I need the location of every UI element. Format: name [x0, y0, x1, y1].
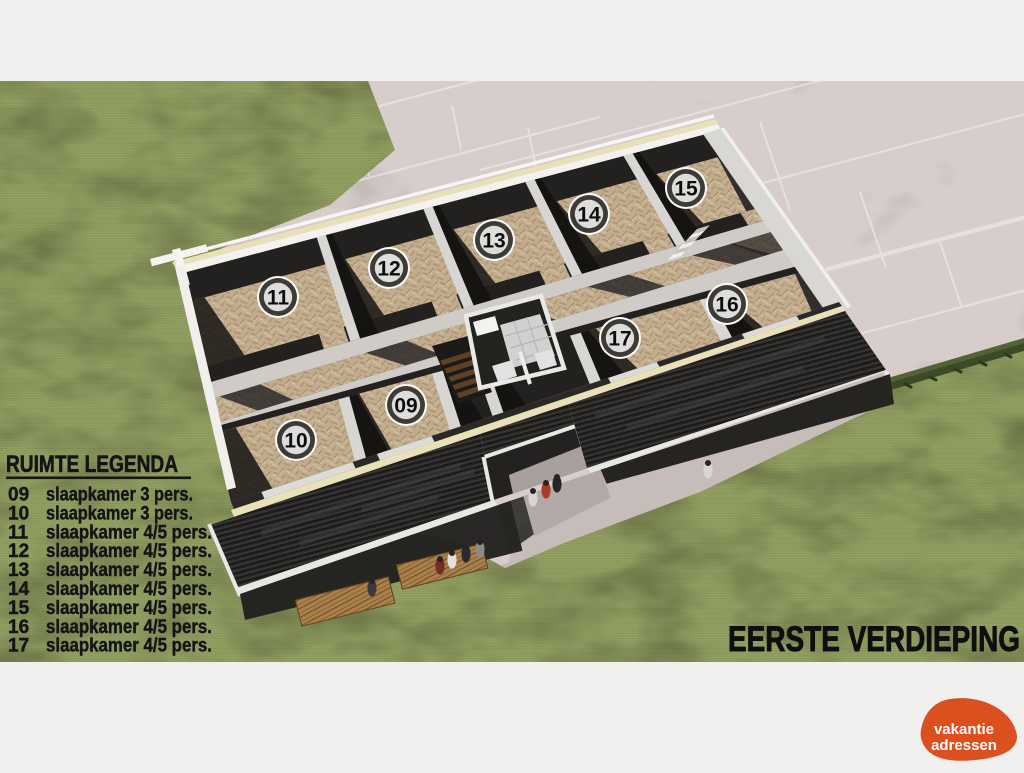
svg-text:15: 15: [674, 178, 698, 201]
svg-text:09: 09: [8, 485, 29, 506]
svg-text:14: 14: [577, 204, 601, 227]
svg-text:17: 17: [608, 328, 631, 351]
svg-text:slaapkamer 4/5 pers.: slaapkamer 4/5 pers.: [46, 598, 212, 619]
svg-text:slaapkamer 4/5 pers.: slaapkamer 4/5 pers.: [46, 617, 212, 638]
svg-text:11: 11: [267, 287, 290, 310]
svg-text:10: 10: [8, 503, 29, 524]
svg-text:16: 16: [715, 294, 738, 317]
svg-text:14: 14: [8, 579, 30, 600]
svg-text:slaapkamer 3 pers.: slaapkamer 3 pers.: [46, 503, 193, 524]
svg-text:13: 13: [482, 230, 505, 253]
svg-text:slaapkamer 4/5 pers.: slaapkamer 4/5 pers.: [46, 560, 212, 581]
svg-text:slaapkamer 4/5 pers.: slaapkamer 4/5 pers.: [46, 522, 212, 543]
svg-text:slaapkamer 4/5 pers.: slaapkamer 4/5 pers.: [46, 579, 212, 600]
svg-text:RUIMTE LEGENDA: RUIMTE LEGENDA: [6, 451, 178, 478]
svg-text:slaapkamer 4/5 pers.: slaapkamer 4/5 pers.: [46, 541, 212, 562]
svg-text:09: 09: [394, 395, 417, 418]
svg-text:vakantie: vakantie: [934, 721, 994, 738]
svg-text:adressen: adressen: [931, 737, 997, 754]
svg-text:11: 11: [8, 522, 29, 543]
svg-text:16: 16: [8, 617, 29, 638]
svg-text:10: 10: [284, 430, 307, 453]
svg-text:EERSTE VERDIEPING: EERSTE VERDIEPING: [728, 620, 1020, 659]
svg-text:12: 12: [377, 258, 400, 281]
svg-text:slaapkamer 4/5 pers.: slaapkamer 4/5 pers.: [46, 636, 212, 657]
svg-text:12: 12: [8, 541, 29, 562]
svg-text:13: 13: [8, 560, 29, 581]
svg-text:15: 15: [8, 598, 30, 619]
svg-text:slaapkamer 3 pers.: slaapkamer 3 pers.: [46, 485, 193, 506]
svg-text:17: 17: [8, 636, 29, 657]
